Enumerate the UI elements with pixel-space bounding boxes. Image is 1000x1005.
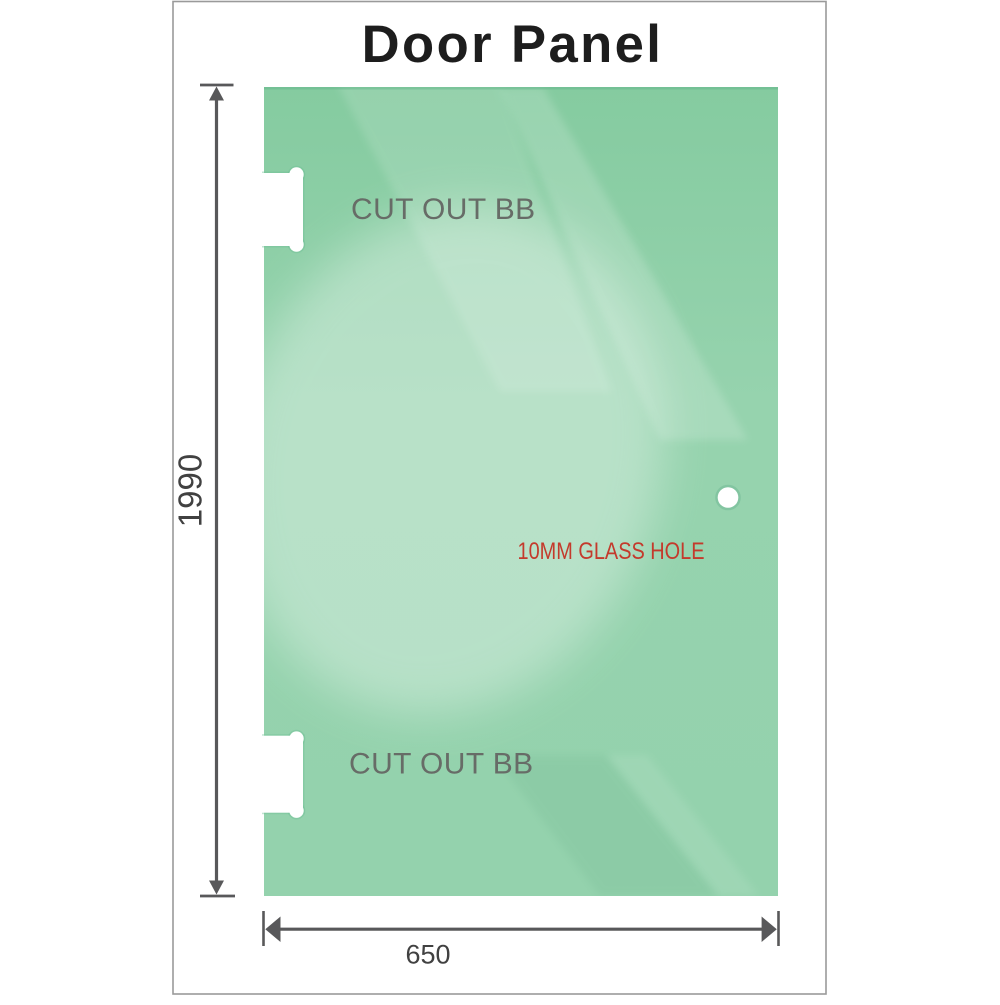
svg-text:Door Panel: Door Panel bbox=[362, 15, 664, 74]
svg-text:CUT OUT BB: CUT OUT BB bbox=[349, 748, 534, 781]
svg-text:CUT OUT BB: CUT OUT BB bbox=[351, 193, 536, 226]
svg-text:1990: 1990 bbox=[171, 454, 208, 527]
svg-text:10MM GLASS HOLE: 10MM GLASS HOLE bbox=[518, 537, 705, 564]
svg-text:650: 650 bbox=[405, 940, 450, 970]
